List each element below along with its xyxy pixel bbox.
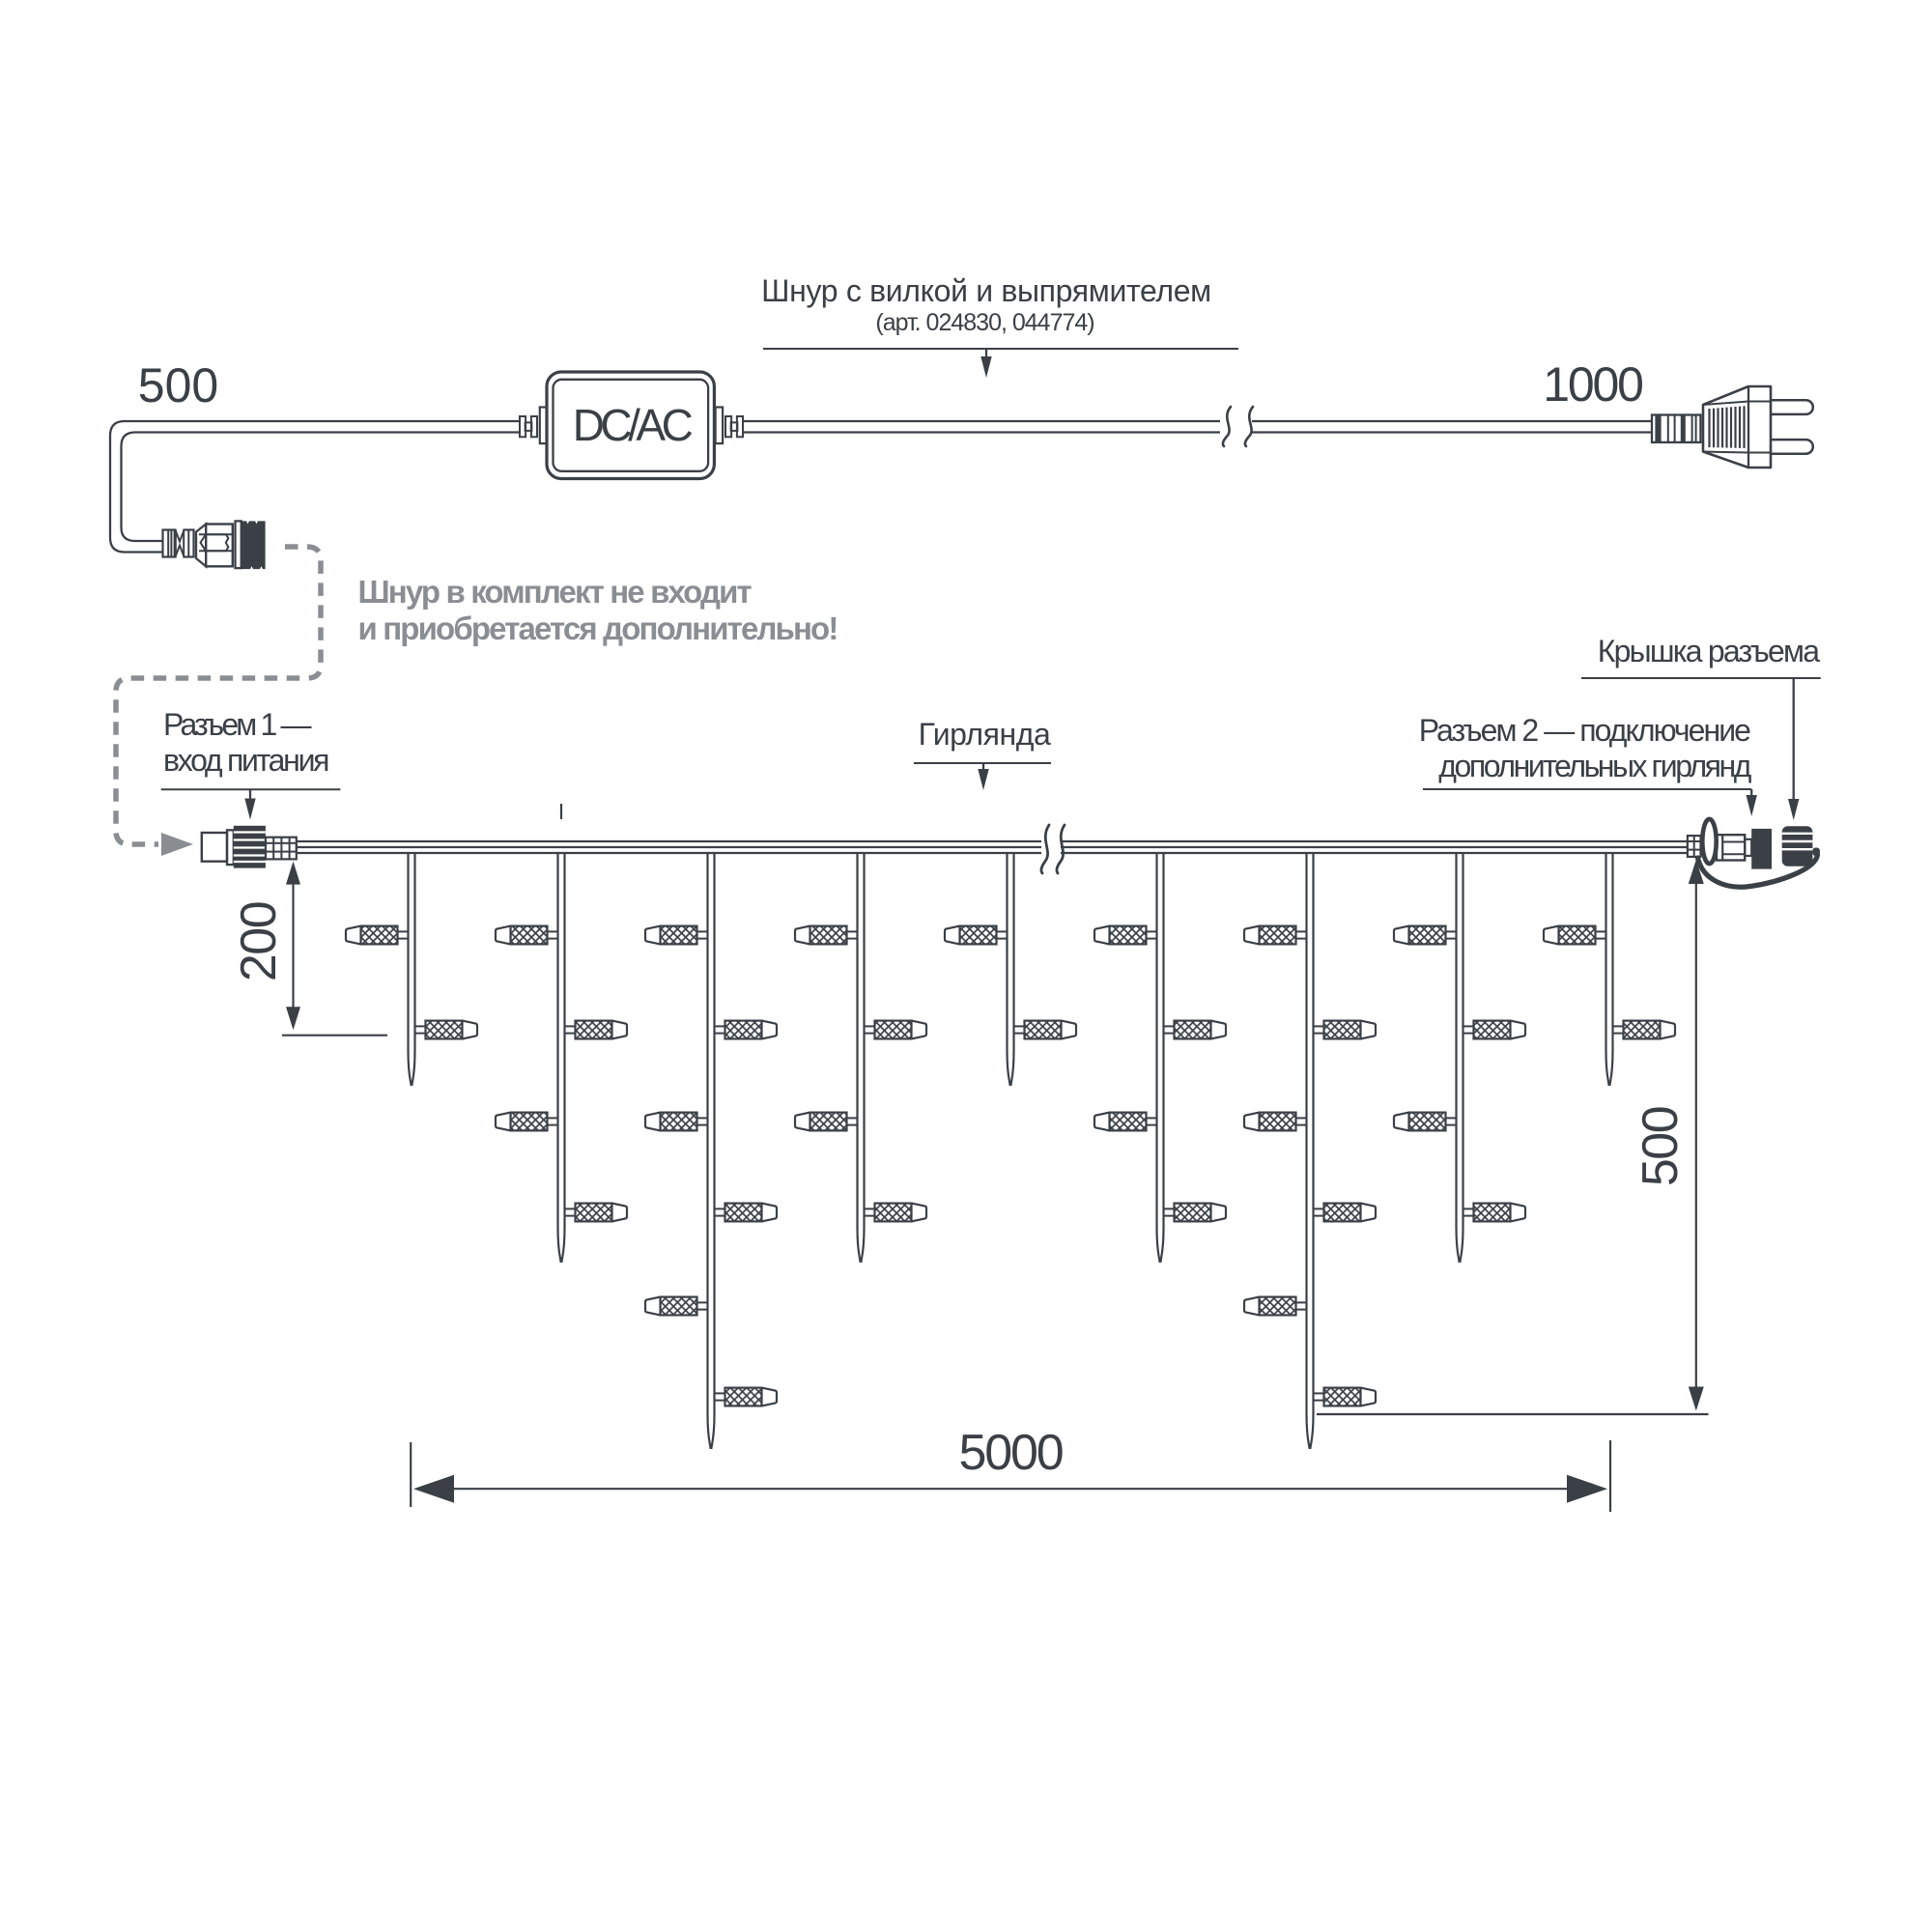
svg-text:200: 200 (231, 902, 287, 981)
svg-text:Крышка разъема: Крышка разъема (1598, 634, 1820, 668)
svg-text:Разъем 1 —: Разъем 1 — (163, 707, 312, 742)
svg-text:Разъем 2 — подключение: Разъем 2 — подключение (1419, 713, 1750, 748)
svg-text:500: 500 (138, 358, 218, 412)
svg-text:(арт. 024830, 044774): (арт. 024830, 044774) (875, 309, 1094, 336)
svg-text:Гирлянда: Гирлянда (919, 717, 1051, 752)
svg-text:Шнур в комплект не входит: Шнур в комплект не входит (358, 574, 753, 610)
svg-text:и приобретается дополнительно!: и приобретается дополнительно! (358, 611, 838, 646)
svg-text:1000: 1000 (1543, 357, 1642, 412)
svg-text:500: 500 (1633, 1107, 1689, 1186)
svg-text:вход питания: вход питания (163, 743, 328, 778)
svg-text:5000: 5000 (959, 1425, 1063, 1481)
svg-text:DC/AC: DC/AC (573, 400, 693, 450)
svg-text:дополнительных гирлянд: дополнительных гирлянд (1438, 749, 1752, 783)
svg-text:Шнур с вилкой и выпрямителем: Шнур с вилкой и выпрямителем (761, 273, 1211, 308)
